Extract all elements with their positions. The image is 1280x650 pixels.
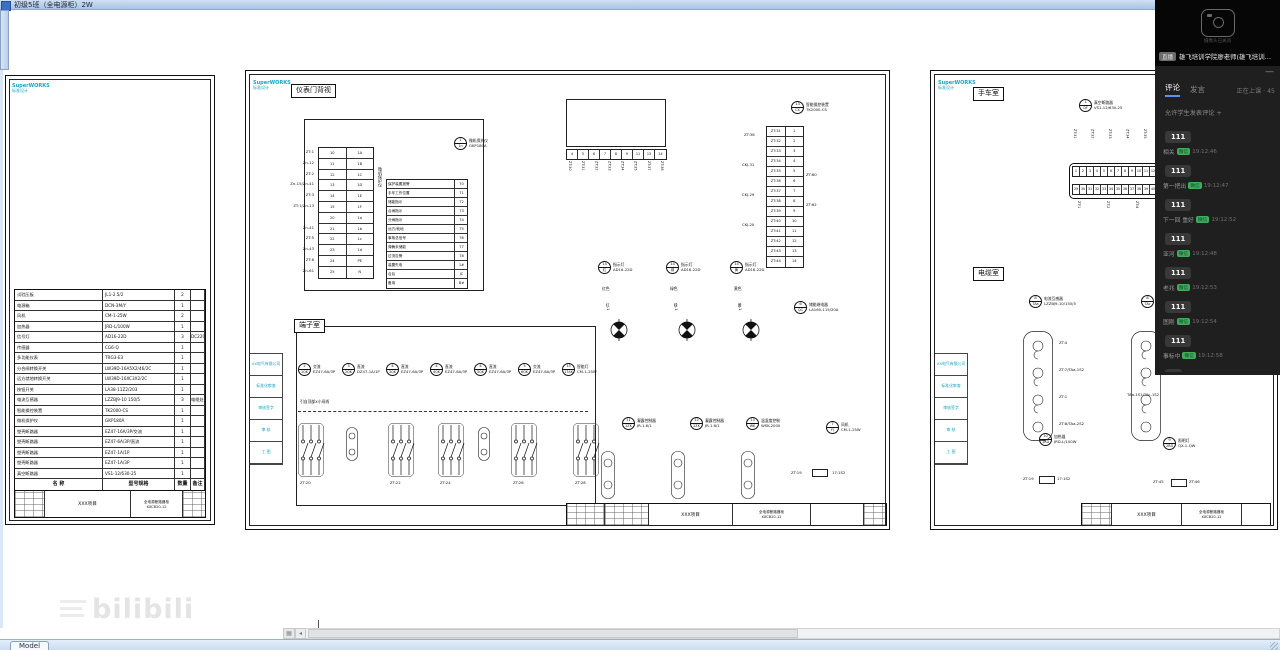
stack-label: 审 核 [935, 420, 967, 442]
stack-label: 审 核 [250, 420, 282, 442]
table-row: 221c [319, 234, 373, 245]
project-name: XXX项目 [45, 491, 131, 517]
wire-link [1171, 479, 1187, 487]
table-row: ZT:399 [767, 207, 803, 217]
stack-label: 审核签字 [250, 398, 282, 420]
relay-symbol [478, 427, 490, 461]
vertical-wire-label: ZT:4 [1135, 201, 1139, 221]
vertical-wire-label: ZT:32 [594, 161, 598, 185]
terminal-cell: 7 [600, 150, 611, 159]
table-row: 201a [319, 213, 373, 224]
vertical-wire-label: ZT:35 [1143, 129, 1147, 161]
component-circle-symbol: 1517AK智能灯CM-1-25W [562, 363, 597, 376]
indicator-lamp-symbol [676, 319, 698, 341]
annotation-label: CKJ-31 [742, 163, 754, 167]
terminal-cell: 4 [1094, 167, 1101, 176]
title-block: XXX项目 全电源断路器柜 XXCB20-12 [1081, 503, 1271, 526]
stack-label [260, 212, 314, 223]
stack-label: Zn-12 [260, 158, 314, 169]
terminal-cell: 35 [1115, 185, 1122, 194]
terminal-cell: 6 [1108, 167, 1115, 176]
table-row: 弹簧未储能77 [387, 243, 467, 252]
stack-label: ZT:5 [260, 233, 314, 244]
table-row: 电源箱DCN-3M/Y1 [15, 301, 205, 312]
stack-label: 工 图 [935, 442, 967, 464]
bom-rows: 试验压板JL1-2.5/22电源箱DCN-3M/Y1风机CM-1-25W2加热器… [15, 290, 205, 479]
annotation-label: CKJ-20 [742, 223, 754, 227]
terminal-cell: 14 [655, 150, 666, 159]
table-row: 过流告警78 [387, 252, 467, 261]
camera-caption: 摄像头已关闭 [1155, 38, 1280, 44]
annotation-label: ZT:4 [1059, 341, 1067, 345]
switch-group-symbol [511, 423, 537, 477]
scroll-left-arrow[interactable]: ◂ [295, 628, 306, 639]
table-row: 111B [319, 159, 373, 170]
chat-message[interactable]: 111 [1163, 124, 1275, 143]
sheet-logo: SuperWORKS标准设计 [938, 80, 976, 91]
window-title: 初级5班（全电源柜）2W [14, 1, 93, 9]
component-circle-symbol: 8TAa电流互感器LZZBJ9-10/150/5 [1029, 295, 1076, 308]
stack-label: Zn-15/Zn-41 [260, 179, 314, 190]
table-row: 141E [319, 191, 373, 202]
table-row: ZT:377 [767, 187, 803, 197]
vertical-wire-label: ZT:34 [1125, 129, 1129, 161]
terminal-cell: 29 [1073, 185, 1080, 194]
table-row: 储能指示72 [387, 198, 467, 207]
vertical-wire-label: ZT:31 [1073, 129, 1077, 161]
class-status: 正在上课 · 45 [1236, 86, 1275, 97]
stack-label: 标准化审查 [250, 376, 282, 398]
table-row: 传感器CG6-Q1 [15, 343, 205, 354]
terminal-cell: 39 [1143, 185, 1150, 194]
tab-comments[interactable]: 评论 [1165, 82, 1180, 97]
table-row: 真空断路器VS1-12/630-251 [15, 469, 205, 480]
vertical-wire-label: ZT:34 [621, 161, 625, 185]
annotation-label: 黄-1 [738, 303, 742, 311]
component-circle-symbol: 44QK直流EZ47-6A/3P [430, 363, 467, 376]
stack-label: Zn-43 [260, 244, 314, 255]
wire-link [1039, 476, 1055, 484]
terminal-cell: 4 [567, 150, 578, 159]
annotation-label: ZT:24 [440, 481, 451, 485]
chat-message[interactable]: 相关微信19:12:46111 [1163, 147, 1275, 177]
annotation-label: CKJ-29 [742, 193, 754, 197]
table-row: 按钮开关LA38-11Z2/2031 [15, 385, 205, 396]
terminal-cell: 30 [1080, 185, 1087, 194]
switch-group-symbol [573, 423, 599, 477]
stack-label: 审核签字 [935, 398, 967, 420]
table-row: ZT:322 [767, 137, 803, 147]
terminal-cell: 34 [1108, 185, 1115, 194]
terminal-cell: 37 [1129, 185, 1136, 194]
component-circle-symbol: 56QK交流EZ47-6A/3P [518, 363, 555, 376]
table-row: ZT:4212 [767, 237, 803, 247]
annotation-label: ZT:22 [390, 481, 401, 485]
indicator-lamp-symbol [608, 319, 630, 341]
table-row: ZT:355 [767, 167, 803, 177]
terminal-cell: 31 [1087, 185, 1094, 194]
component-circle-symbol: 11n微机保护仪GKP180A [454, 137, 488, 150]
wire-link [812, 469, 828, 477]
window-title-bar[interactable]: 初级5班（全电源柜）2W [0, 0, 1280, 10]
table-row: 风机CM-1-25W2 [15, 311, 205, 322]
chat-message[interactable]: 下一回 重好微信19:12:52111 [1163, 215, 1275, 245]
table-row: 101A [319, 148, 373, 159]
right-terminal-table: ZT:311ZT:322ZT:333ZT:344ZT:355ZT:366ZT:3… [766, 126, 804, 268]
table-row: 24PE [319, 256, 373, 267]
terminal-cell: 36 [1122, 185, 1129, 194]
component-circle-symbol: 111ZK凝露控制器JR-1.6/1 [622, 417, 656, 430]
bom-title-block: XXX项目 全电源断路器柜 XXCB20-12 [14, 490, 206, 518]
terminal-cell: 10 [1136, 167, 1143, 176]
livestream-panel: 摄像头已关闭 直播 雄飞培训学院廖老师(雄飞培训… — 评论 发言 正在上课 ·… [1155, 0, 1280, 375]
stack-label: ZT:2 [260, 169, 314, 180]
table-row: ZT:333 [767, 147, 803, 157]
stack-label: ZT:1/Zn-13 [260, 201, 314, 212]
room-label-terminal: 端子室 [294, 319, 325, 333]
stack-label: XX电气有限公司 [250, 354, 282, 376]
chat-message[interactable]: 图刚微信19:12:54111 [1163, 317, 1275, 347]
terminal-room-frame [296, 326, 596, 506]
left-edge-strip [0, 70, 3, 628]
terminal-cell: 33 [1101, 185, 1108, 194]
annotation-label: 黄色 [734, 287, 742, 291]
annotation-label: ZT:46 [1189, 480, 1200, 484]
collapsed-left-palette[interactable] [0, 10, 9, 70]
chat-message[interactable]: 亚河微信19:12:48111 [1163, 249, 1275, 279]
terminal-cell: 3 [1087, 167, 1094, 176]
annotation-label: 红-1 [606, 303, 610, 311]
autocad-window: 初级5班（全电源柜）2W SuperWORKS标准设计 试验压板JL1-2.5/… [0, 0, 1280, 650]
terminal-cell: 11 [1143, 167, 1150, 176]
room-label-instrument-door: 仪表门背视 [291, 84, 336, 98]
project-name: XXX项目 [1112, 504, 1182, 525]
table-row: 电流互感器LZZBJ9-10 150/53电缆处安装 [15, 395, 205, 406]
table-row: 远方/就地75 [387, 225, 467, 234]
stack-label: ZT:3 [260, 190, 314, 201]
table-row: 塑壳断路器EZ47-6A/3P/直流1 [15, 437, 205, 448]
vertical-wire-label: ZT:37 [647, 161, 651, 185]
table-row: 装置失电1# [387, 261, 467, 270]
table-row: 塑壳断路器EZ47-16A/3P/交流1 [15, 427, 205, 438]
table-row: 231d [319, 245, 373, 256]
annotation-label: ZT:28 [575, 481, 586, 485]
component-circle-symbol: 13WK温湿度控制WSK-2000 [746, 417, 780, 430]
sheet-logo: SuperWORKS标准设计 [253, 80, 291, 91]
component-circle-symbol: 45QK直流EZ47-6A/3P [474, 363, 511, 376]
annotation-label: ZT:19 [1023, 477, 1034, 481]
table-row: ZT:4414 [767, 257, 803, 267]
chat-message-list[interactable]: 111相关微信19:12:46111第一把出微信19:12:47111下一回 重… [1163, 124, 1275, 372]
relay-coil-symbol [601, 451, 615, 499]
annotation-label: 绿-1 [674, 303, 678, 311]
door-terminal-table: 101A111B121C131D141E151F201a211b221c231d… [318, 147, 374, 279]
annotation-label: 17:1S2 [1057, 477, 1070, 481]
tab-speak[interactable]: 发言 [1190, 84, 1205, 97]
room-label-cable: 电缆室 [973, 267, 1004, 281]
table-row: 合后JC [387, 270, 467, 279]
stack-label: Zn-41 [260, 223, 314, 234]
table-row: 微机保护仪GKP180A1 [15, 416, 205, 427]
drawing-sheet-bom[interactable]: SuperWORKS标准设计 试验压板JL1-2.5/22电源箱DCN-3M/Y… [5, 75, 215, 525]
annotation-label: ZT:20 [300, 481, 311, 485]
status-bar: Model [0, 639, 1280, 650]
vertical-device-label: 微机保护仪 [377, 167, 383, 187]
vertical-wire-label: ZT:1 [1077, 201, 1081, 221]
dashed-busbar [298, 411, 588, 412]
door-wire-labels: ZT:1Zn-12ZT:2Zn-15/Zn-41ZT:3ZT:1/Zn-13Zn… [260, 147, 314, 277]
project-name: XXX项目 [649, 504, 733, 525]
teacher-video-area[interactable]: 摄像头已关闭 直播 雄飞培训学院廖老师(雄飞培训… [1155, 0, 1280, 66]
table-row: 分合闸转换开关LW39D-16A5X2/46/2C1 [15, 364, 205, 375]
table-row: 塑壳断路器EZ47-1A/1P1 [15, 448, 205, 459]
relay-symbol [346, 427, 358, 461]
terminal-cell: 5 [578, 150, 589, 159]
table-row: 131D [319, 180, 373, 191]
comment-permission-notice[interactable]: 允许学生发表评论 + [1165, 108, 1222, 117]
terminal-cell: 1 [1073, 167, 1080, 176]
bilibili-watermark: bilibili [92, 594, 194, 625]
vertical-wire-label: ZT:35 [634, 161, 638, 185]
signature-fields: XX电气有限公司标准化审查审核签字审 核工 图 [934, 353, 968, 465]
relay-coil-symbol [671, 451, 685, 499]
table-row: 备用B# [387, 279, 467, 288]
annotation-label: 17:1S2 [832, 471, 845, 475]
terminal-cell: 9 [622, 150, 633, 159]
terminal-cell: 6 [589, 150, 600, 159]
vertical-wire-label: ZT:31 [581, 161, 585, 185]
vertical-wire-label: ZT:33 [607, 161, 611, 185]
table-row: ZT:388 [767, 197, 803, 207]
annotation-label: ZT:7/TAa-1S2 [1059, 368, 1084, 372]
terminal-cell: 9 [1129, 167, 1136, 176]
component-circle-symbol: 92RD照明灯QX-1-QW [1163, 437, 1195, 450]
sheet-logo: SuperWORKS标准设计 [12, 83, 50, 94]
table-row: ZT:4313 [767, 247, 803, 257]
annotation-label: ZT:26 [513, 481, 524, 485]
annotation-label: ZT:36 [744, 133, 755, 137]
stack-label: ZT:1 [260, 147, 314, 158]
terminal-cell: 8 [611, 150, 622, 159]
component-circle-symbol: 14绿指示灯AD16-22D [666, 261, 700, 274]
component-circle-symbol: 14黄指示灯AD16-22D [730, 261, 764, 274]
table-row: 分闸指示74 [387, 216, 467, 225]
component-circle-symbol: 1QF真空断路器VS1-12/630-25 [1079, 99, 1122, 112]
component-circle-symbol: 6QC储能继电器LA160-115/20A [794, 301, 838, 314]
table-row: 试验压板JL1-2.5/22 [15, 290, 205, 301]
vertical-wire-label: ZT:38 [660, 161, 664, 185]
switch-group-symbol [388, 423, 414, 477]
component-circle-symbol: 13CX智能操控装置TK2000-CS [791, 101, 829, 114]
scrollbar-pan-icon[interactable]: ▦ [283, 628, 295, 639]
ct-block-symbol [1023, 331, 1053, 441]
annotation-label: 绿色 [670, 287, 678, 291]
terminal-cell: 32 [1094, 185, 1101, 194]
annotation-label: ZT:1 [1059, 395, 1067, 399]
annotation-label: ZT:19 [791, 471, 802, 475]
table-row: 121C [319, 170, 373, 181]
stack-label: 工 图 [250, 442, 282, 464]
camera-off-icon [1201, 9, 1235, 37]
bom-table: 试验压板JL1-2.5/22电源箱DCN-3M/Y1风机CM-1-25W2加热器… [14, 289, 206, 492]
component-circle-symbol: 7FJ风机CM-1-25W [826, 421, 861, 434]
component-circle-symbol: 21QK交流EZ47-6A/3P [298, 363, 335, 376]
scrollbar-thumb[interactable] [308, 629, 798, 638]
annotation-label: ZT:62 [806, 203, 817, 207]
terminal-cell: 5 [1101, 167, 1108, 176]
annotation-label: TAa-1S1/TAc-1S2 [1127, 393, 1159, 397]
vertical-wire-label: ZT:32 [1090, 129, 1094, 161]
live-badge: 直播 [1159, 52, 1176, 61]
table-row: ZT:311 [767, 127, 803, 137]
stack-label: XX电气有限公司 [935, 354, 967, 376]
stack-label: 标准化审查 [935, 376, 967, 398]
indicator-lamp-symbol [740, 319, 762, 341]
terminal-cell: 2 [1080, 167, 1087, 176]
table-row: 手车工作位置71 [387, 189, 467, 198]
resize-grip[interactable] [1270, 642, 1278, 650]
terminal-cell: 8 [1122, 167, 1129, 176]
annotation-label: ZT:60 [806, 173, 817, 177]
stack-label: ZT:6 [260, 255, 314, 266]
switch-group-symbol [298, 423, 324, 477]
vertical-wire-label: ZT:30 [568, 161, 572, 185]
table-row: 151F [319, 202, 373, 213]
room-label-handcart: 手车室 [973, 87, 1004, 101]
model-tab[interactable]: Model [10, 641, 49, 650]
component-circle-symbol: 32QK直流DZ47-1A/1P [342, 363, 380, 376]
vertical-wire-label: ZT:2 [1106, 201, 1110, 221]
terminal-cell: 38 [1136, 185, 1143, 194]
drawing-sheet-main[interactable]: SuperWORKS标准设计 仪表门背视 ZT:1Zn-12ZT:2Zn-15/… [245, 70, 890, 530]
component-circle-symbol: 14红指示灯AD16-22D [598, 261, 632, 274]
table-row: 智能操控装置TK2000-CS1 [15, 406, 205, 417]
terminal-cell: 7 [1115, 167, 1122, 176]
stack-label: Zn-61 [260, 266, 314, 277]
table-row: ZT:366 [767, 177, 803, 187]
vertical-wire-label: ZT:33 [1108, 129, 1112, 161]
display-screen-frame [566, 99, 666, 147]
table-row: 事故总信号76 [387, 234, 467, 243]
chat-message[interactable]: 老兆微信19:12:53111 [1163, 283, 1275, 313]
bus-note: 引自顶部X小母线 [300, 400, 329, 404]
relay-coil-symbol [741, 451, 755, 499]
annotation-label: ZT:8/TAa-2S2 [1059, 422, 1084, 426]
table-row: 合闸指示73 [387, 207, 467, 216]
collapse-panel-button[interactable]: — [1265, 68, 1274, 77]
terminal-cell: 11 [633, 150, 644, 159]
table-row: 信号灯AD16-22D3DC220V [15, 332, 205, 343]
table-row: 塑壳断路器EZ47-1A/3P1 [15, 458, 205, 469]
table-row: 加热器JRD-L/100W1 [15, 322, 205, 333]
table-row: 25N [319, 267, 373, 278]
chat-message[interactable]: 事标中微信19:12:581 [1163, 351, 1275, 372]
horizontal-scrollbar[interactable]: ▦ ◂ [283, 628, 1280, 639]
terminal-cell: 13 [644, 150, 655, 159]
component-circle-symbol: 122ZK凝露控制器JR-1.6/1 [690, 417, 724, 430]
component-circle-symbol: 43QK直流EZ47-6A/3P [386, 363, 423, 376]
table-row: ZT:4010 [767, 217, 803, 227]
stream-title-row: 直播 雄飞培训学院廖老师(雄飞培训… [1159, 52, 1277, 61]
chat-message[interactable]: 第一把出微信19:12:47111 [1163, 181, 1275, 211]
signal-table: 保护装置报警70手车工作位置71储能指示72合闸指示73分闸指示74远方/就地7… [386, 179, 468, 289]
table-row: 多功能仪表TRG3-E31 [15, 353, 205, 364]
annotation-label: ZT:45 [1153, 480, 1164, 484]
display-wire-labels: ZT:30ZT:31ZT:32ZT:33ZT:34ZT:35ZT:37ZT:38 [568, 161, 664, 185]
stream-title: 雄飞培训学院廖老师(雄飞培训… [1179, 52, 1271, 61]
table-row: 远方就地转换开关LW39D-16XC3X2/2C1 [15, 374, 205, 385]
display-terminal-cells: 456789111314 [566, 149, 667, 160]
table-row: ZT:344 [767, 157, 803, 167]
annotation-label: 红色 [602, 287, 610, 291]
chat-tabs: 评论 发言 正在上课 · 45 [1165, 82, 1275, 97]
table-row: ZT:4111 [767, 227, 803, 237]
table-row: 211b [319, 224, 373, 235]
switch-group-symbol [438, 423, 464, 477]
table-row: 保护装置报警70 [387, 180, 467, 189]
title-block: XXX项目 全电源断路器柜 XXCB20-12 [566, 503, 887, 526]
signature-fields: XX电气有限公司标准化审查审核签字审 核工 图 [249, 353, 283, 465]
